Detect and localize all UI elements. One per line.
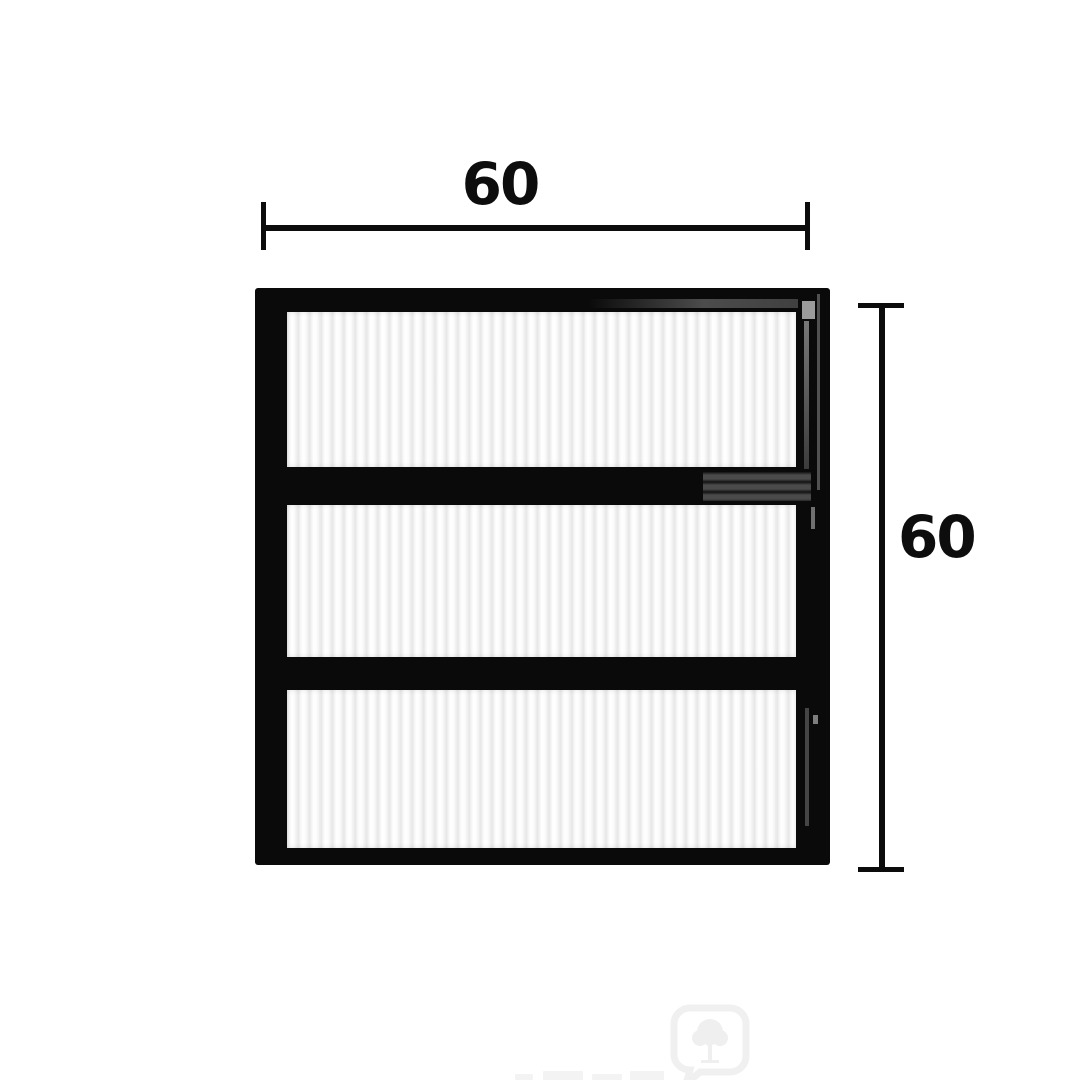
screw-speck (813, 715, 818, 724)
glass-panel-middle (287, 505, 796, 657)
watermark-text-fragment (630, 1071, 664, 1080)
height-dimension-line (879, 303, 885, 872)
top-frame-sheen (588, 299, 798, 308)
watermark-text-fragment (592, 1074, 622, 1080)
hinge-rail-upper (804, 321, 809, 469)
pivot-arm-hardware (703, 472, 811, 501)
glass-panel-bottom (287, 690, 796, 848)
width-dimension-left-tick (261, 202, 266, 250)
product-image: 60 60 (0, 0, 1080, 1080)
height-dimension-top-cap (858, 303, 904, 308)
watermark-text-fragment (543, 1071, 583, 1080)
tree-in-bubble-icon (668, 1002, 752, 1080)
width-dimension-line (263, 225, 808, 231)
height-dimension-label: 60 (898, 508, 978, 566)
hinge-rail-lower (805, 708, 809, 826)
glass-panel-top (287, 312, 796, 467)
frame-rail-gap (817, 294, 820, 490)
watermark-logo (668, 1002, 752, 1080)
latch-hardware (811, 507, 815, 529)
width-dimension-right-tick (805, 202, 810, 250)
window-frame (255, 288, 830, 865)
pivot-slot-hardware (802, 301, 815, 319)
height-dimension-bottom-cap (858, 867, 904, 872)
watermark-text-fragment (515, 1074, 533, 1080)
width-dimension-label: 60 (430, 155, 570, 213)
